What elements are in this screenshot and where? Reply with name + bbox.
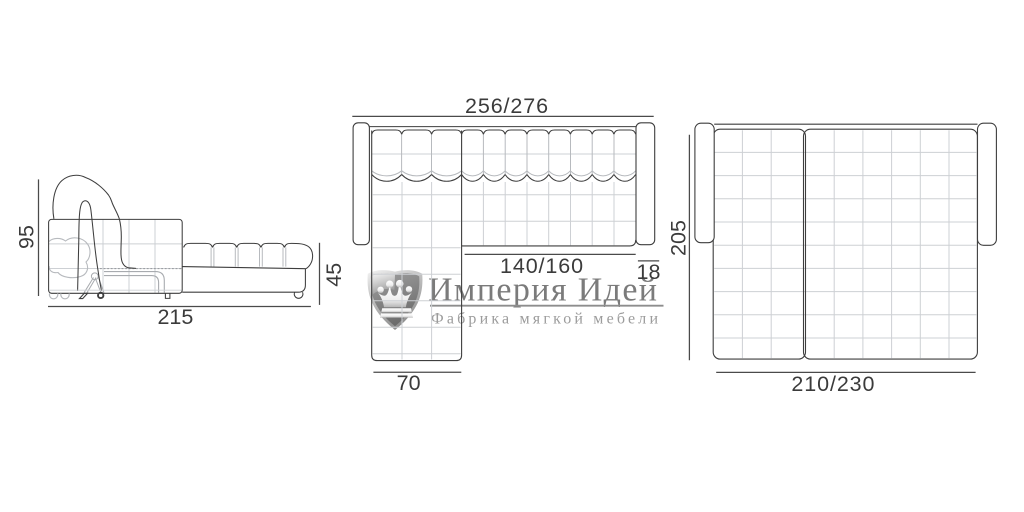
svg-text:205: 205	[667, 220, 691, 256]
svg-text:210/230: 210/230	[791, 372, 875, 396]
svg-text:140/160: 140/160	[500, 254, 584, 278]
svg-text:Фабрика мягкой мебели: Фабрика мягкой мебели	[431, 311, 658, 328]
svg-text:256/276: 256/276	[465, 94, 549, 118]
svg-text:215: 215	[157, 305, 193, 329]
svg-text:95: 95	[15, 225, 39, 249]
svg-text:45: 45	[322, 263, 346, 287]
svg-text:18: 18	[637, 260, 661, 284]
svg-text:70: 70	[397, 371, 421, 395]
